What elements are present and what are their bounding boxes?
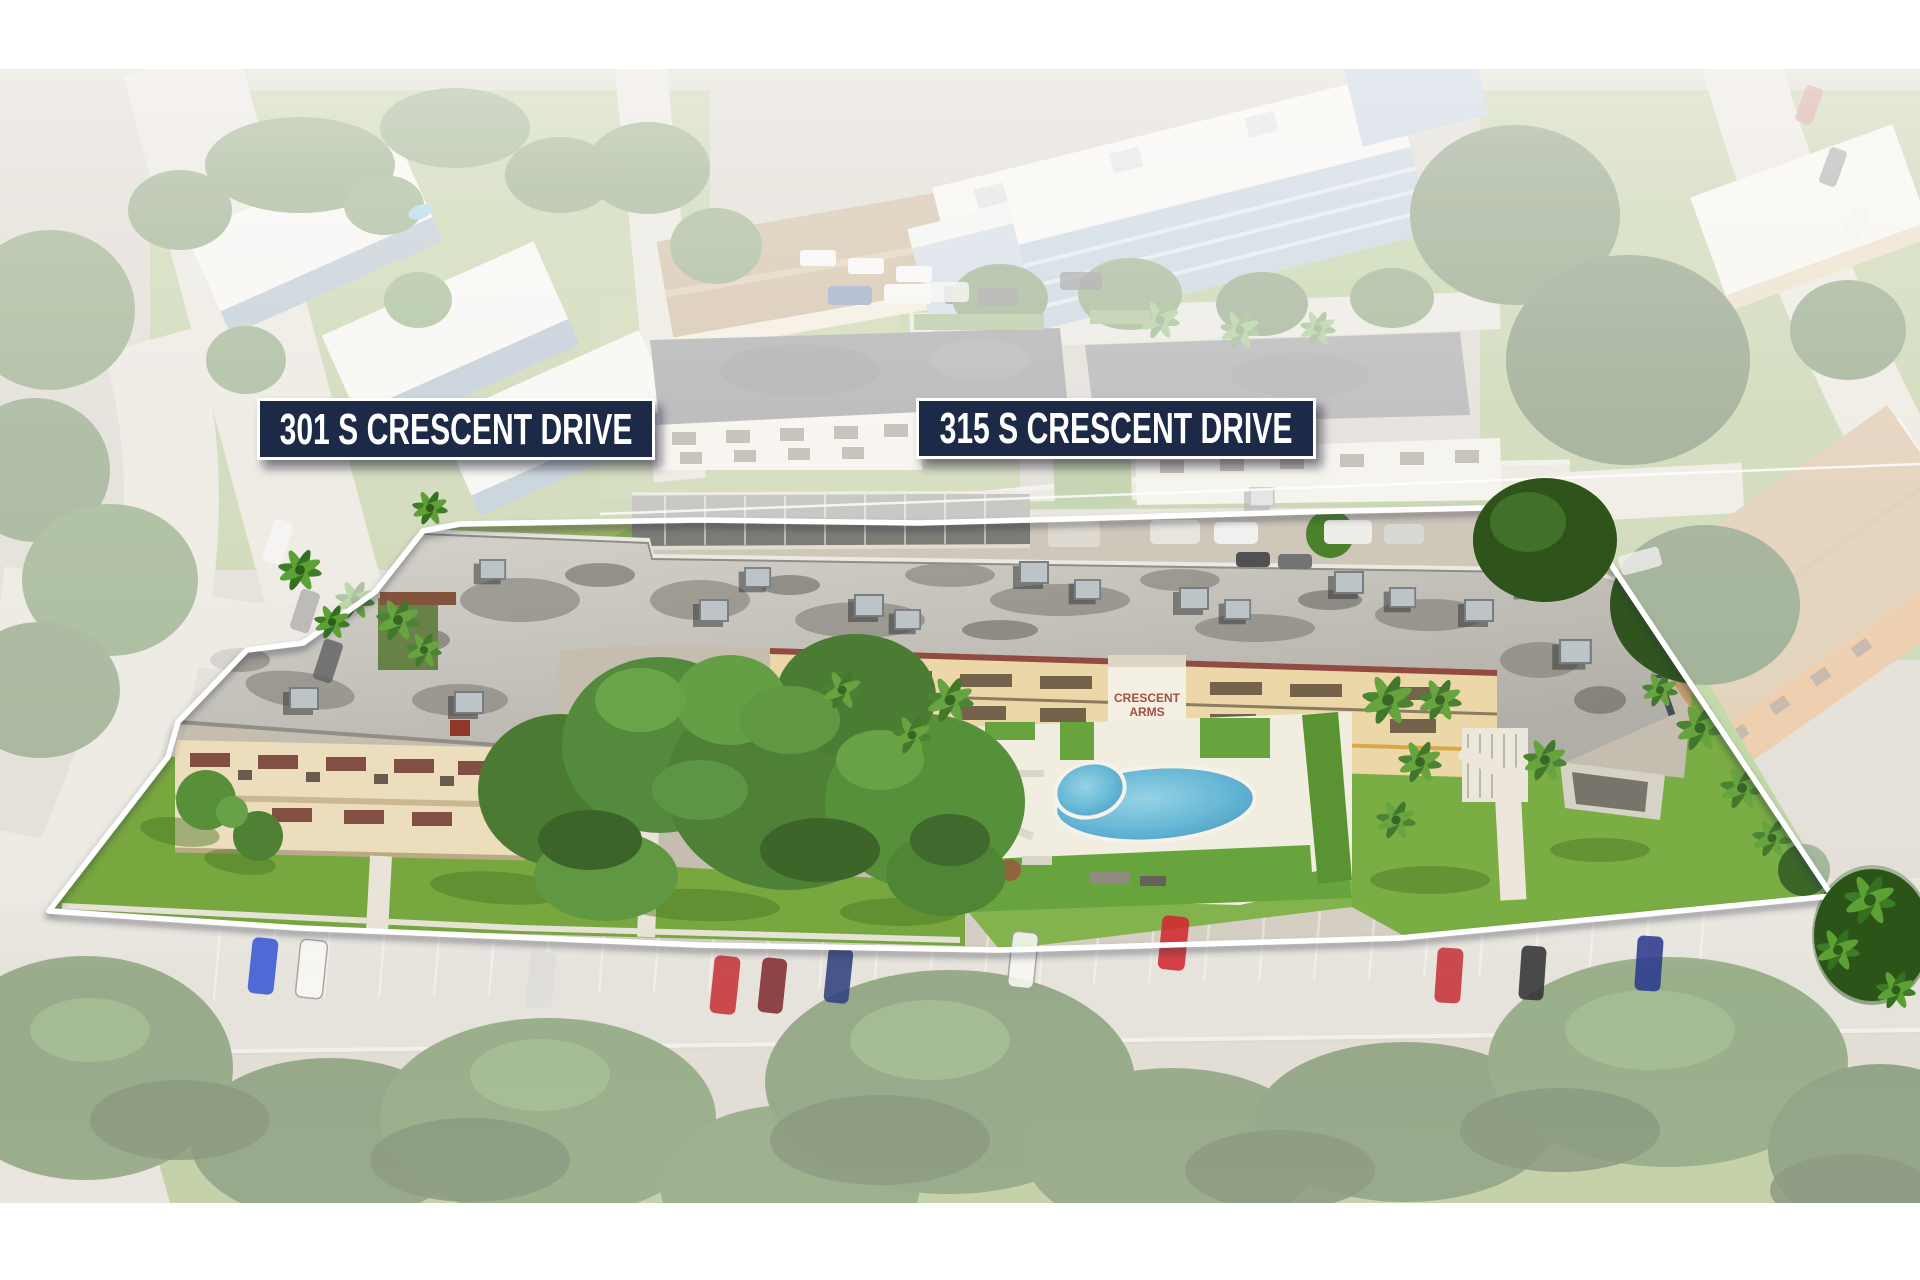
- svg-text:315 S CRESCENT DRIVE: 315 S CRESCENT DRIVE: [940, 403, 1293, 452]
- svg-text:301 S CRESCENT DRIVE: 301 S CRESCENT DRIVE: [280, 404, 633, 453]
